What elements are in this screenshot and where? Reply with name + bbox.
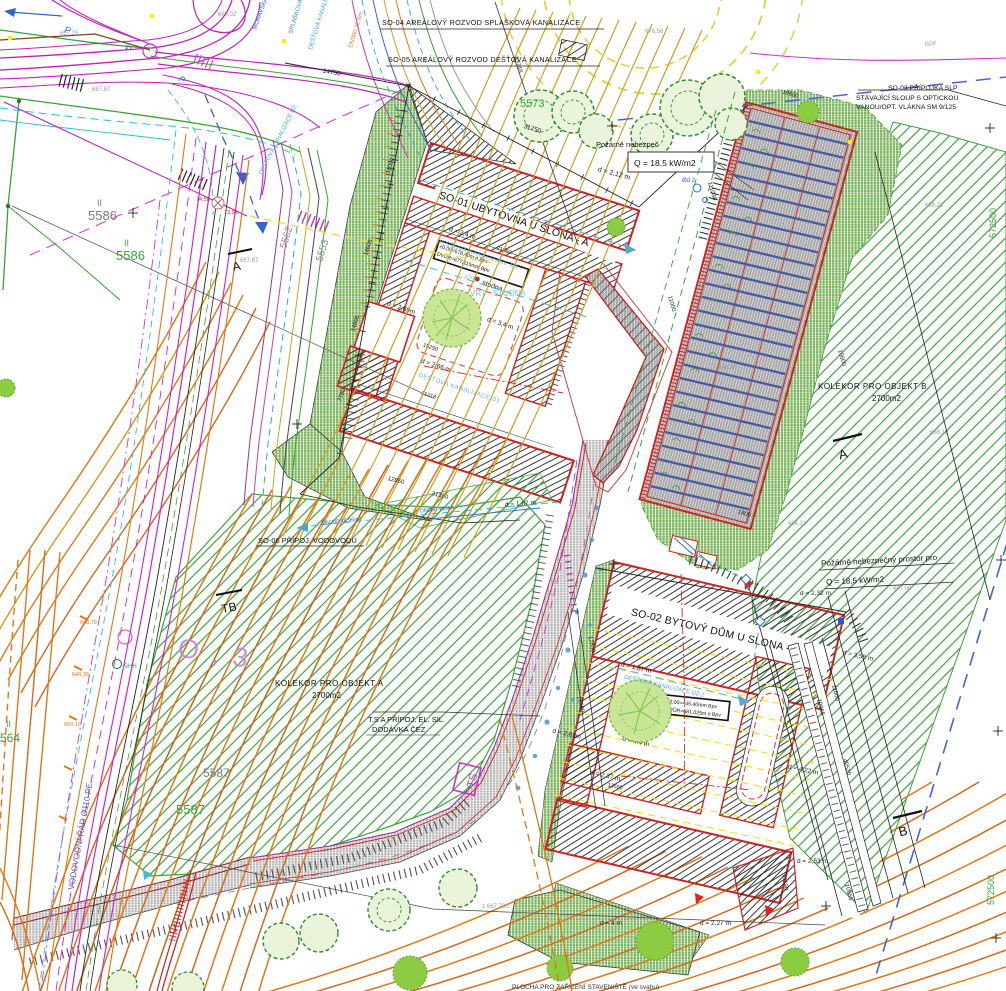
svg-text:II: II (6, 719, 11, 729)
svg-text:650,10: 650,10 (64, 722, 81, 728)
svg-text:TB: TB (220, 599, 238, 615)
svg-text:688,22: 688,22 (925, 203, 944, 209)
svg-text:5573: 5573 (520, 98, 544, 110)
svg-text:687,00: 687,00 (893, 586, 912, 592)
svg-text:SO-06 PŘÍPOJ. VODOVODU: SO-06 PŘÍPOJ. VODOVODU (258, 536, 357, 545)
svg-text:T.S A PŘÍPOJ. EL. SIL.: T.S A PŘÍPOJ. EL. SIL. (368, 715, 445, 724)
svg-text:572500: 572500 (988, 208, 998, 238)
svg-text:KOLEKOR PRO OBJEKT B: KOLEKOR PRO OBJEKT B (818, 382, 927, 391)
svg-text:d = 2,53 m: d = 2,53 m (797, 858, 828, 865)
svg-text:5586: 5586 (88, 208, 117, 223)
svg-text:ŠHH: ŠHH (124, 663, 137, 670)
svg-text:VRT - STUDNA: VRT - STUDNA (470, 289, 526, 298)
svg-text:II: II (124, 238, 129, 248)
svg-text:II: II (97, 198, 102, 208)
svg-text:684,11: 684,11 (788, 521, 807, 527)
svg-text:Q = 18,5 kW/m2: Q = 18,5 kW/m2 (634, 158, 696, 168)
svg-text:686,06: 686,06 (718, 365, 737, 371)
svg-text:5587: 5587 (203, 766, 230, 780)
svg-text:Požárně nebezpeč: Požárně nebezpeč (596, 140, 659, 149)
svg-text:660,02: 660,02 (218, 12, 237, 18)
svg-text:667,87: 667,87 (240, 258, 259, 264)
svg-text:572500: 572500 (986, 875, 996, 905)
svg-text:564: 564 (0, 731, 20, 745)
svg-text:PLOCHA PRO ZAŘÍZENÍ STAVENIŠTĚ: PLOCHA PRO ZAŘÍZENÍ STAVENIŠTĚ (ve svahu… (512, 982, 659, 991)
svg-text:2700m2: 2700m2 (872, 394, 901, 403)
svg-text:SO-04 AREÁLOVÝ ROZVOD SPLAŠKOV: SO-04 AREÁLOVÝ ROZVOD SPLAŠKOVÁ KANALIZA… (382, 18, 580, 27)
svg-text:SO-03 PŘÍPOJKA SLP: SO-03 PŘÍPOJKA SLP (888, 83, 958, 92)
svg-text:648,70: 648,70 (80, 620, 97, 626)
svg-text:5587: 5587 (176, 802, 205, 817)
svg-text:d = 2,27 m: d = 2,27 m (700, 920, 731, 927)
svg-text:649,30: 649,30 (72, 672, 89, 678)
svg-text:2700m2: 2700m2 (312, 691, 341, 700)
svg-text:BPF: BPF (925, 42, 937, 48)
svg-text:d = 4 m: d = 4 m (600, 920, 622, 927)
svg-text:74,58: 74,58 (196, 197, 210, 203)
svg-text:SO-05 AREÁLOVÝ ROZVOD DEŠŤOVÁ: SO-05 AREÁLOVÝ ROZVOD DEŠŤOVÁ KANALIZACE (388, 55, 577, 64)
svg-text:5586: 5586 (116, 248, 145, 263)
svg-text:VANOU/OPT. VLÁKNA SM 9/125: VANOU/OPT. VLÁKNA SM 9/125 (856, 102, 956, 111)
svg-text:Ød 2: Ød 2 (682, 178, 696, 184)
svg-text:73,96: 73,96 (224, 210, 238, 216)
svg-text:687,87: 687,87 (92, 87, 111, 93)
svg-text:KOLEKOR PRO OBJEKT A: KOLEKOR PRO OBJEKT A (275, 679, 384, 688)
svg-text:STÁVAJÍCÍ SLOUP S OPTICKOU: STÁVAJÍCÍ SLOUP S OPTICKOU (856, 93, 959, 102)
svg-text:688,12: 688,12 (930, 430, 949, 436)
svg-text:1 667 790: 1 667 790 (482, 904, 509, 910)
svg-text:DODÁVKA ČEZ: DODÁVKA ČEZ (372, 725, 426, 734)
svg-text:d = 2,32 m: d = 2,32 m (800, 590, 831, 597)
svg-text:676,56: 676,56 (645, 29, 664, 35)
